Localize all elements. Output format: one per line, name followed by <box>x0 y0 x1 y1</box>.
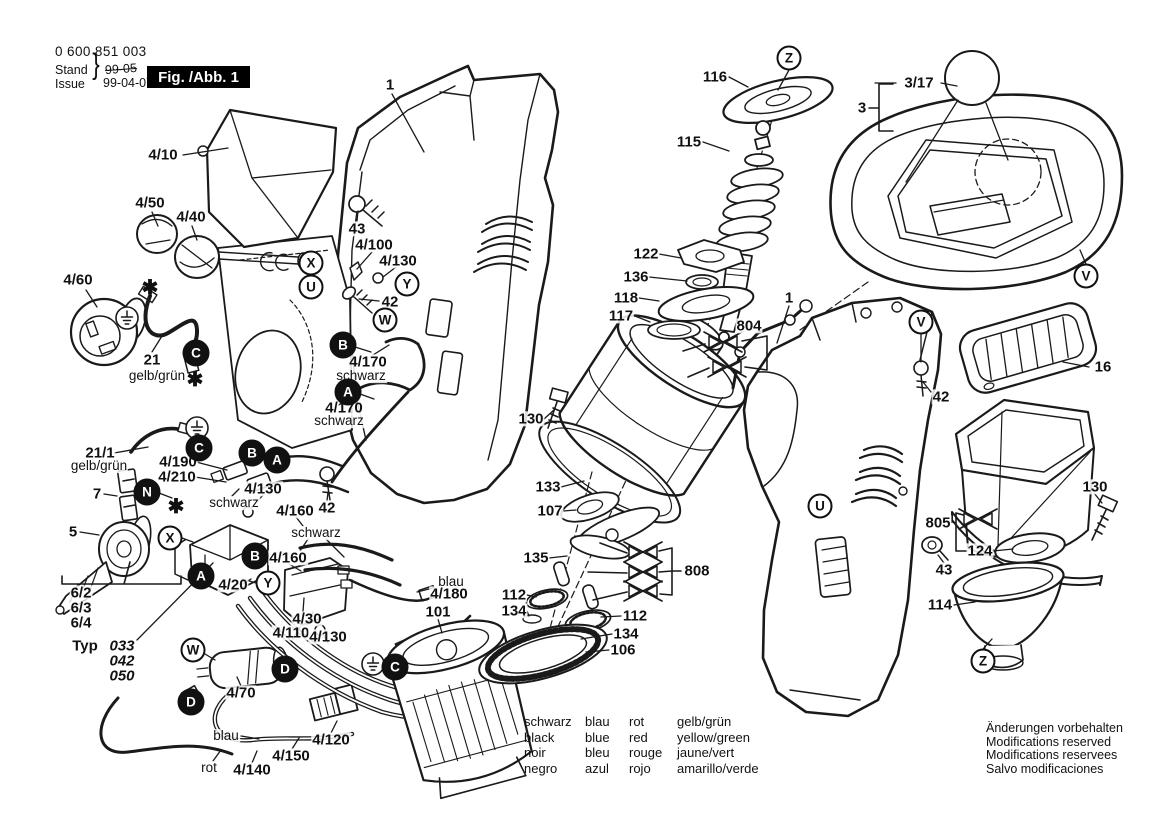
part-label-114: 114 <box>927 597 953 612</box>
discontinued-part-icon <box>624 542 662 562</box>
brace-glyph: } <box>92 58 100 72</box>
notice-line: Modifications reserved <box>986 736 1123 750</box>
part-label-4-160: 4/160 <box>268 550 308 565</box>
part-label-115: 115 <box>676 134 702 149</box>
earth-ground-icon <box>116 307 138 329</box>
part-label-116: 116 <box>702 69 728 84</box>
diagram-line-art <box>0 0 1168 826</box>
callout-letter-y: Y <box>395 272 420 297</box>
part-label-122: 122 <box>632 246 659 261</box>
asterisk-marker-icon: ✱ <box>167 497 186 517</box>
part-label-16: 16 <box>1094 359 1113 374</box>
figure-title-box: Fig. /Abb. 1 <box>147 66 250 88</box>
asterisk-marker-icon: ✱ <box>186 370 205 390</box>
legend-color-term: black <box>524 730 585 746</box>
legend-color-term: rouge <box>629 745 677 761</box>
part-label-117: 117 <box>608 308 634 323</box>
callout-letter-x: X <box>299 251 324 276</box>
part-label-6-4: 6/4 <box>70 615 93 630</box>
asterisk-marker-icon: ✱ <box>141 278 160 298</box>
part-right-housing <box>744 298 941 716</box>
part-label-5: 5 <box>68 524 78 539</box>
notice-line: Modifications reservees <box>986 749 1123 763</box>
document-number: 0 600 851 003 <box>55 44 147 59</box>
callout-letter-y: Y <box>256 571 281 596</box>
callout-letter-d: D <box>272 656 299 683</box>
callout-letter-z: Z <box>971 649 996 674</box>
modifications-notice: Änderungen vorbehaltenModifications rese… <box>986 722 1123 776</box>
callout-letter-u: U <box>808 494 833 519</box>
part-label-804: 804 <box>735 318 762 333</box>
part-label-4-160: 4/160 <box>275 503 315 518</box>
part-label-4-50: 4/50 <box>134 195 165 210</box>
knob-ball-3-17 <box>945 51 999 105</box>
part-label-4-150: 4/150 <box>271 748 311 763</box>
part-label-134: 134 <box>500 603 527 618</box>
legend-color-term: bleu <box>585 745 629 761</box>
callout-letter-b: B <box>239 440 266 467</box>
part-hopper-cover-3 <box>830 51 1122 289</box>
color-legend: schwarzblaurotgelb/grünblackblueredyello… <box>524 714 759 776</box>
callout-letter-x: X <box>158 526 183 551</box>
part-label-3: 3 <box>857 100 867 115</box>
notice-line: Änderungen vorbehalten <box>986 722 1123 736</box>
legend-color-term: negro <box>524 761 585 777</box>
issue-date: 99-04-07 <box>103 77 153 91</box>
part-label-7: 7 <box>92 486 102 501</box>
callout-letter-v: V <box>1074 264 1099 289</box>
callout-letter-v: V <box>909 310 934 335</box>
callout-letter-b: B <box>330 332 357 359</box>
callout-letter-a: A <box>188 563 215 590</box>
part-label-4-210: 4/210 <box>157 469 197 484</box>
part-label-135: 135 <box>522 550 549 565</box>
legend-color-term: amarillo/verde <box>677 761 759 777</box>
callout-letter-w: W <box>373 308 398 333</box>
part-label-4-100: 4/100 <box>354 237 394 252</box>
part-label-43: 43 <box>348 221 367 236</box>
legend-color-term: yellow/green <box>677 730 759 746</box>
part-label-6-3: 6/3 <box>70 600 93 615</box>
legend-color-term: azul <box>585 761 629 777</box>
part-label-schwarz: schwarz <box>290 526 342 540</box>
legend-color-term: rojo <box>629 761 677 777</box>
legend-color-term: blau <box>585 714 629 730</box>
callout-letter-a: A <box>264 447 291 474</box>
part-label-130: 130 <box>517 411 544 426</box>
callout-letter-a: A <box>335 379 362 406</box>
part-screw-130-right <box>1092 495 1117 540</box>
part-label-gelb-grün: gelb/grün <box>70 459 128 473</box>
part-label-3-17: 3/17 <box>903 75 934 90</box>
legend-color-term: rot <box>629 714 677 730</box>
part-label-gelb-grün: gelb/grün <box>128 369 186 383</box>
legend-color-term: jaune/vert <box>677 745 759 761</box>
part-label-1: 1 <box>385 77 395 92</box>
legend-color-term: blue <box>585 730 629 746</box>
callout-letter-c: C <box>186 435 213 462</box>
cable-21-1-gelb-gruen <box>131 423 193 452</box>
legend-color-term: gelb/grün <box>677 714 759 730</box>
part-label-4-180: 4/180 <box>429 586 469 601</box>
part-label-1: 1 <box>784 290 794 305</box>
part-label-4-70: 4/70 <box>225 685 256 700</box>
part-label-107: 107 <box>536 503 563 518</box>
part-label-124: 124 <box>966 543 993 558</box>
part-label-101: 101 <box>424 604 451 619</box>
discontinued-part-icon <box>624 562 662 582</box>
part-funnel-114 <box>950 556 1066 670</box>
part-screw-805-43 <box>922 537 948 560</box>
part-label-4-130: 4/130 <box>378 253 418 268</box>
part-label-4-20: 4/20 <box>217 577 248 592</box>
callout-letter-z: Z <box>777 46 802 71</box>
legend-color-term: schwarz <box>524 714 585 730</box>
part-label-042: 042 <box>108 653 135 668</box>
part-label-4-110: 4/110 <box>272 625 311 640</box>
callout-letter-c: C <box>183 340 210 367</box>
part-label-42: 42 <box>318 500 337 515</box>
part-label-43: 43 <box>935 562 954 577</box>
exploded-parts-diagram: 0 600 851 003 Stand Issue } 99-05 99-04-… <box>0 0 1168 826</box>
part-label-118: 118 <box>613 290 639 305</box>
part-label-805: 805 <box>924 515 951 530</box>
part-label-21: 21 <box>143 352 162 367</box>
part-label-4-40: 4/40 <box>175 209 206 224</box>
part-label-blau: blau <box>212 729 240 743</box>
part-label-4-120: 4/120 <box>311 732 351 747</box>
callout-letter-u: U <box>299 275 324 300</box>
part-label-6-2: 6/2 <box>70 585 93 600</box>
part-label-112: 112 <box>501 587 527 602</box>
legend-color-term: red <box>629 730 677 746</box>
callout-letter-w: W <box>181 638 206 663</box>
part-label-4-130: 4/130 <box>308 629 348 644</box>
part-label-112: 112 <box>622 608 648 623</box>
discontinued-part-icon <box>624 581 662 601</box>
part-label-130: 130 <box>1081 479 1108 494</box>
part-grate-16 <box>956 299 1101 397</box>
part-label-4-140: 4/140 <box>232 762 272 777</box>
part-label-134: 134 <box>612 626 639 641</box>
callout-letter-d: D <box>178 689 205 716</box>
part-label-4-60: 4/60 <box>62 272 93 287</box>
legend-color-term: noir <box>524 745 585 761</box>
part-deflector-4-10 <box>198 110 336 247</box>
callout-letter-n: N <box>134 479 161 506</box>
part-label-rot: rot <box>200 761 218 775</box>
part-label-42: 42 <box>932 389 951 404</box>
part-label-133: 133 <box>534 479 561 494</box>
part-label-typ: Typ <box>71 638 99 653</box>
part-label-4-10: 4/10 <box>147 147 178 162</box>
notice-line: Salvo modificaciones <box>986 763 1123 777</box>
part-label-050: 050 <box>108 668 135 683</box>
part-label-033: 033 <box>108 638 135 653</box>
part-label-808: 808 <box>683 563 710 578</box>
part-disc-116 <box>719 68 837 132</box>
part-label-136: 136 <box>622 269 649 284</box>
part-label-schwarz: schwarz <box>313 414 365 428</box>
callout-letter-b: B <box>242 543 269 570</box>
callout-letter-c: C <box>382 654 409 681</box>
part-label-106: 106 <box>609 642 636 657</box>
part-label-schwarz: schwarz <box>208 496 260 510</box>
